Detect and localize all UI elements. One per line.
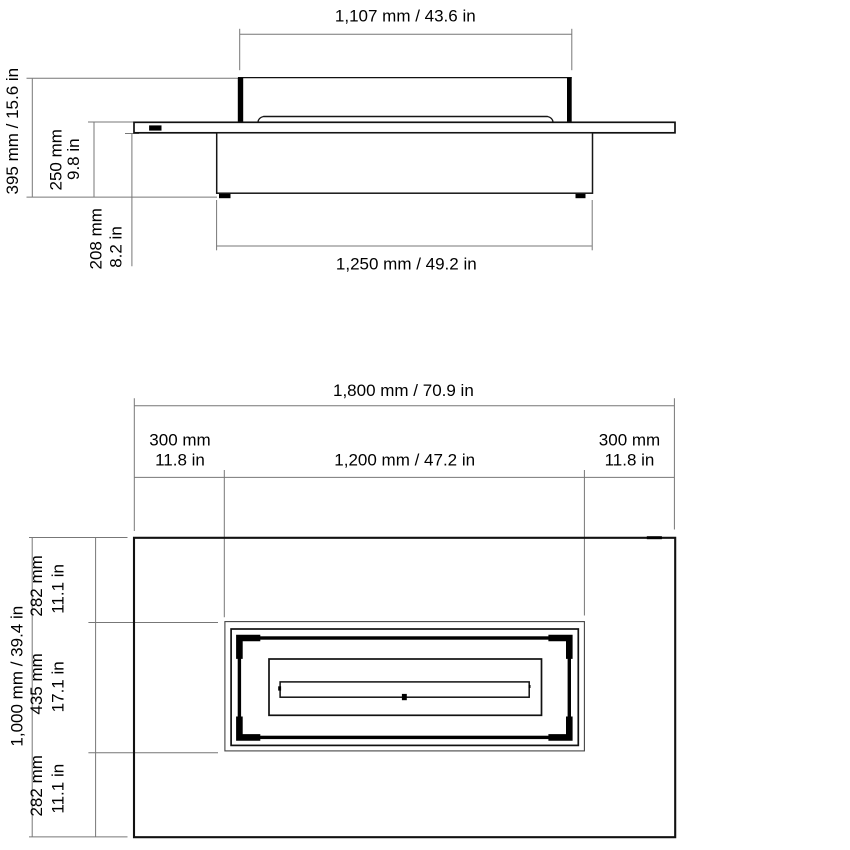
svg-text:1,200 mm / 47.2 in: 1,200 mm / 47.2 in bbox=[334, 451, 475, 470]
svg-text:250 mm: 250 mm bbox=[47, 129, 66, 190]
svg-text:208 mm: 208 mm bbox=[86, 208, 105, 269]
svg-text:282 mm: 282 mm bbox=[27, 555, 46, 616]
svg-text:395 mm / 15.6 in: 395 mm / 15.6 in bbox=[3, 68, 22, 195]
svg-text:1,107 mm / 43.6 in: 1,107 mm / 43.6 in bbox=[335, 6, 476, 25]
svg-text:11.1 in: 11.1 in bbox=[48, 564, 67, 614]
svg-text:300 mm: 300 mm bbox=[599, 431, 660, 450]
svg-text:8.2 in: 8.2 in bbox=[107, 226, 126, 268]
svg-text:300 mm: 300 mm bbox=[149, 431, 210, 450]
svg-text:1,000 mm / 39.4 in: 1,000 mm / 39.4 in bbox=[8, 606, 27, 747]
svg-text:1,250 mm / 49.2 in: 1,250 mm / 49.2 in bbox=[336, 255, 477, 274]
svg-text:282 mm: 282 mm bbox=[27, 755, 46, 816]
svg-text:435 mm: 435 mm bbox=[27, 653, 46, 714]
svg-text:9.8 in: 9.8 in bbox=[64, 138, 83, 180]
svg-text:11.1 in: 11.1 in bbox=[48, 764, 67, 814]
svg-text:11.8 in: 11.8 in bbox=[155, 451, 205, 470]
svg-text:11.8 in: 11.8 in bbox=[605, 451, 655, 470]
svg-text:1,800 mm / 70.9 in: 1,800 mm / 70.9 in bbox=[333, 381, 474, 400]
svg-text:17.1 in: 17.1 in bbox=[48, 661, 67, 712]
